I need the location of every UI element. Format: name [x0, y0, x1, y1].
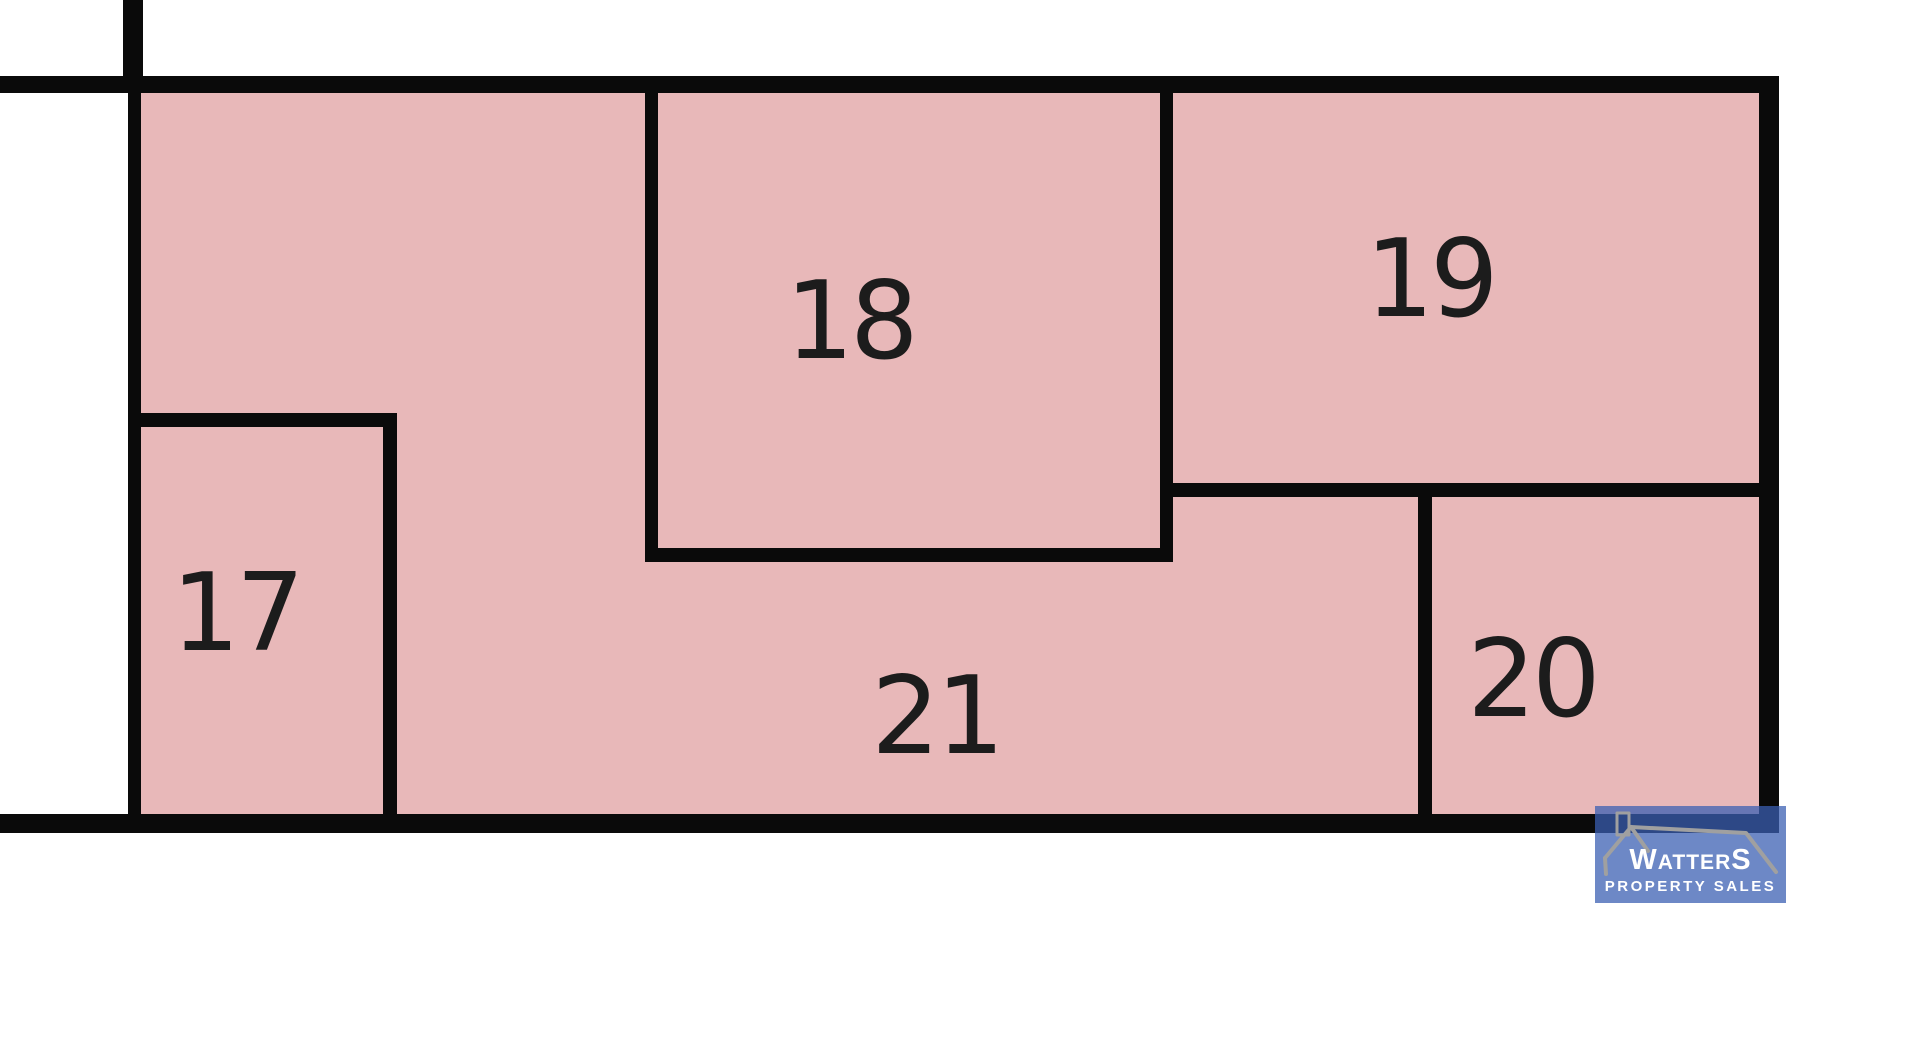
- logo-brand-text: WATTERS: [1595, 846, 1786, 875]
- boundary-line-top-left: [0, 76, 128, 93]
- plot-18-left-boundary: [645, 93, 658, 562]
- plot-label-18: 18: [785, 268, 914, 376]
- logo-brand-w: W: [1629, 844, 1657, 876]
- plot-label-17: 17: [171, 560, 300, 668]
- logo-brand-s: S: [1731, 844, 1751, 876]
- plot-17-top-boundary: [141, 413, 397, 427]
- plot-19-bottom-boundary: [1160, 483, 1759, 497]
- boundary-line-top-stub: [123, 0, 143, 76]
- plot-18-bottom-boundary: [645, 548, 1173, 562]
- plot-label-19: 19: [1365, 226, 1494, 334]
- plot-label-20: 20: [1467, 626, 1596, 734]
- site-plan-canvas: 17 18 19 20 21 WATTERS PROPERTY SALES: [0, 0, 1920, 1037]
- logo-tagline: PROPERTY SALES: [1595, 879, 1786, 894]
- boundary-line-bottom-left: [0, 814, 128, 833]
- watters-logo: WATTERS PROPERTY SALES: [1595, 806, 1786, 903]
- plot-20-left-boundary: [1418, 483, 1432, 814]
- plot-label-21: 21: [871, 663, 1000, 771]
- logo-brand-atter: ATTER: [1658, 851, 1731, 874]
- plot-17-right-boundary: [383, 413, 397, 814]
- plot-block: 17 18 19 20 21: [128, 76, 1779, 833]
